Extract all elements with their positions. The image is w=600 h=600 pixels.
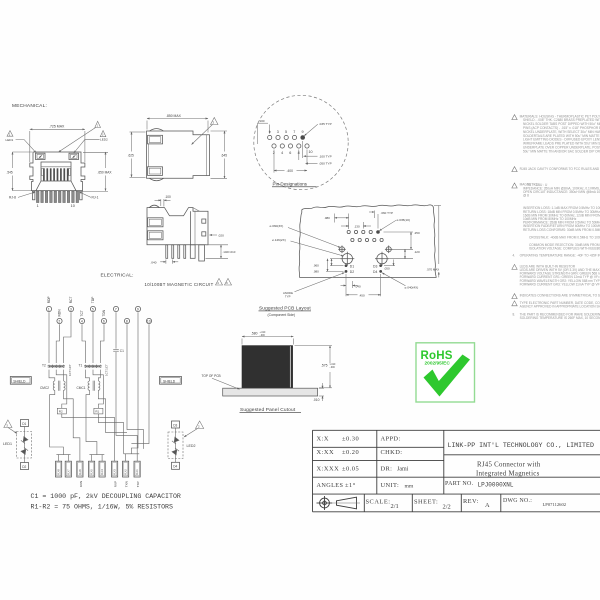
svg-text:LED1: LED1	[3, 442, 12, 446]
svg-text:.400: .400	[287, 169, 294, 173]
svg-text:SHIELD: SHIELD	[163, 380, 176, 384]
svg-text:1: 1	[37, 204, 39, 208]
svg-text:LINK-PP INT'L TECHNOLOGY CO.,: LINK-PP INT'L TECHNOLOGY CO., LIMITED	[448, 442, 594, 449]
svg-text:±0.30: ±0.30	[342, 436, 359, 443]
svg-text:.450: .450	[359, 293, 365, 297]
svg-text:APPD:: APPD:	[381, 436, 401, 443]
svg-text:Integrated Magnetics: Integrated Magnetics	[476, 471, 540, 478]
svg-text:UNIT:: UNIT:	[381, 482, 400, 489]
svg-text:.545: .545	[7, 170, 13, 174]
svg-text:-.000: -.000	[260, 335, 266, 337]
svg-text:CROSSTALK: -40dB MAX FROM 0.5M: CROSSTALK: -40dB MAX FROM 0.5MHz TO 100M…	[529, 236, 600, 240]
svg-text:CMC2: CMC2	[40, 386, 49, 390]
svg-text:6: 6	[289, 151, 291, 155]
svg-text:FORWARD CURRENT GR3: YELLOW 11: FORWARD CURRENT GR3: YELLOW 11mA TYP @ V…	[520, 282, 600, 286]
svg-text:DR:: DR:	[381, 466, 393, 473]
svg-text:TXP: TXP	[136, 481, 140, 487]
svg-text:R1: R1	[95, 410, 99, 414]
svg-text:C1 = 1000 pF, 2kV DECOUPLING C: C1 = 1000 pF, 2kV DECOUPLING CAPACITOR	[31, 493, 181, 500]
svg-text:.140±.010: .140±.010	[223, 250, 236, 254]
svg-text:D2: D2	[22, 465, 26, 469]
svg-text:5: 5	[92, 307, 94, 311]
svg-text:⌀.126(2X): ⌀.126(2X)	[272, 238, 286, 242]
svg-text:2/1: 2/1	[391, 503, 399, 510]
svg-text:±0.20: ±0.20	[342, 449, 359, 456]
svg-text:7: 7	[115, 307, 117, 311]
svg-text:1CT:1CT: 1CT:1CT	[68, 364, 72, 376]
svg-text:.645: .645	[221, 153, 227, 157]
svg-text:⌀.035(10): ⌀.035(10)	[397, 218, 410, 222]
svg-text:DWG NO.:: DWG NO.:	[503, 498, 532, 504]
svg-text:-.000: -.000	[330, 367, 336, 369]
svg-text:50u" MIN MATTE TIN AND/OR SAC: 50u" MIN MATTE TIN AND/OR SAC SOLDER DIP…	[523, 149, 600, 153]
svg-text:ANGLES: ANGLES	[317, 482, 344, 489]
svg-text:RJ-4: RJ-4	[100, 469, 104, 475]
svg-text:D2: D2	[350, 270, 354, 274]
svg-text:Pin Designations: Pin Designations	[273, 181, 308, 186]
svg-text:1CT:1CT: 1CT:1CT	[105, 364, 109, 376]
svg-text:LED2: LED2	[187, 444, 196, 448]
svg-text:.050: .050	[384, 267, 390, 271]
svg-text:SHIELD: SHIELD	[13, 380, 26, 384]
svg-text:D1: D1	[22, 422, 26, 426]
svg-text:.570 MAX: .570 MAX	[427, 267, 440, 271]
svg-text:Jami: Jami	[397, 467, 409, 473]
svg-text:D4: D4	[173, 465, 177, 469]
svg-text:.650 MAX: .650 MAX	[98, 170, 113, 174]
svg-text:.035 TYP: .035 TYP	[319, 122, 332, 126]
svg-text:RJ-3: RJ-3	[113, 469, 117, 475]
svg-text:.050 TYP: .050 TYP	[319, 162, 332, 166]
svg-text:3: 3	[70, 307, 72, 311]
svg-text:.580: .580	[251, 331, 258, 335]
svg-text:@ 8: @ 8	[523, 193, 529, 197]
svg-text:.020: .020	[218, 233, 224, 237]
svg-text:10: 10	[71, 204, 75, 208]
svg-text:LPJ0000XNL: LPJ0000XNL	[478, 482, 514, 489]
svg-text:A: A	[485, 502, 490, 509]
svg-text:(Component Side): (Component Side)	[268, 313, 296, 317]
svg-text:.060 TYP: .060 TYP	[381, 211, 393, 215]
svg-text:.120: .120	[414, 250, 420, 254]
svg-text:8.: 8.	[513, 312, 516, 316]
svg-text:TCT: TCT	[80, 310, 84, 316]
svg-text:4: 4	[281, 151, 283, 155]
svg-text:10: 10	[147, 319, 151, 323]
svg-text:X:XXX: X:XXX	[317, 466, 340, 473]
svg-text:RoHS: RoHS	[421, 350, 453, 362]
svg-text:⌀.060(3X): ⌀.060(3X)	[270, 224, 284, 228]
svg-text:RJ-1: RJ-1	[92, 196, 99, 200]
svg-text:mm: mm	[405, 483, 414, 489]
svg-text:TYP: TYP	[285, 295, 291, 299]
svg-text:T2: T2	[42, 364, 46, 368]
svg-text:TXN: TXN	[125, 481, 129, 487]
svg-text:±0.05: ±0.05	[342, 466, 359, 473]
svg-text:2002/95/EC: 2002/95/EC	[425, 361, 451, 367]
svg-text:.100 TYP: .100 TYP	[319, 154, 332, 158]
svg-text:Suggested Panel Cutout: Suggested Panel Cutout	[240, 407, 296, 413]
svg-text:RXN: RXN	[79, 481, 83, 488]
svg-text:.850 MAX: .850 MAX	[166, 114, 182, 118]
svg-text:.725 MAX: .725 MAX	[49, 125, 65, 129]
svg-text:5: 5	[285, 130, 287, 134]
svg-text:.080: .080	[324, 216, 330, 220]
svg-text:8: 8	[126, 319, 128, 323]
svg-text:+.010: +.010	[260, 332, 267, 334]
svg-text:RJ45 JACK CAVITY CONFORMS TO F: RJ45 JACK CAVITY CONFORMS TO FCC RULES A…	[520, 167, 600, 171]
svg-text:D3: D3	[173, 423, 177, 427]
svg-text:10/100BT MAGNETIC CIRCUIT: 10/100BT MAGNETIC CIRCUIT	[145, 282, 214, 287]
svg-text:RDN: RDN	[58, 309, 62, 317]
svg-text:PART NO.: PART NO.	[445, 481, 474, 487]
svg-text:TDP: TDP	[91, 296, 95, 303]
svg-text:±1°: ±1°	[345, 482, 356, 489]
svg-text:LED1: LED1	[6, 138, 14, 142]
svg-text:4: 4	[81, 319, 83, 323]
svg-text:6: 6	[103, 319, 105, 323]
svg-text:.100: .100	[165, 195, 171, 199]
svg-text:7: 7	[293, 130, 295, 134]
svg-text:R1-R2 = 75 OHMS, 1/16W, 5% RES: R1-R2 = 75 OHMS, 1/16W, 5% RESISTORS	[31, 504, 173, 511]
svg-text:SHEET:: SHEET:	[414, 499, 438, 506]
svg-text:1: 1	[48, 307, 50, 311]
svg-text:MECHANICAL:: MECHANICAL:	[12, 103, 47, 109]
svg-text:.010: .010	[313, 398, 320, 402]
svg-text:ELECTRICAL:: ELECTRICAL:	[101, 273, 134, 279]
svg-text:9: 9	[302, 130, 304, 134]
svg-text:.130: .130	[354, 224, 360, 228]
svg-text:+.010: +.010	[330, 364, 337, 366]
svg-text:LP07112602: LP07112602	[543, 502, 567, 507]
svg-text:.575: .575	[321, 364, 328, 368]
svg-text:.060: .060	[313, 264, 319, 268]
svg-text:RJ-8: RJ-8	[57, 469, 61, 475]
svg-text:4.: 4.	[513, 254, 516, 258]
svg-text:RCT: RCT	[69, 296, 73, 303]
svg-text:R2: R2	[59, 410, 63, 414]
svg-text:RDP: RDP	[47, 295, 51, 303]
svg-text:9: 9	[137, 307, 139, 311]
svg-text:X:X: X:X	[317, 436, 330, 443]
svg-text:OPEN CIRCUIT INDUCTANCE: 350uH: OPEN CIRCUIT INDUCTANCE: 350uH MIN @8mA …	[523, 190, 600, 194]
svg-text:INDICATES CONNECTIONS ARE SYMM: INDICATES CONNECTIONS ARE SYMMETRICAL TO…	[520, 294, 600, 298]
svg-text:.250: .250	[414, 231, 420, 235]
svg-text:2: 2	[58, 319, 60, 323]
svg-text:T1: T1	[79, 364, 83, 368]
svg-text:ISOLATION VOLTAGE: COMPLIES WI: ISOLATION VOLTAGE: COMPLIES WITH IEEE802…	[529, 246, 600, 250]
svg-text:CHKD:: CHKD:	[381, 449, 403, 456]
svg-text:SOLDERING TEMPERATURE IS 260F: SOLDERING TEMPERATURE IS 260F MAX, 10 SE…	[520, 316, 600, 320]
svg-text:.080: .080	[313, 269, 319, 273]
svg-text:RJ-7: RJ-7	[66, 469, 70, 475]
svg-text:LED2: LED2	[100, 137, 108, 141]
svg-text:OPERATING TEMPERATURE RANGE: -: OPERATING TEMPERATURE RANGE: -40F TO +85…	[520, 254, 600, 258]
svg-text:CMC1: CMC1	[77, 386, 86, 390]
svg-text:D1: D1	[350, 264, 354, 268]
svg-text:RJ-2: RJ-2	[124, 469, 128, 475]
svg-text:.040: .040	[150, 260, 156, 264]
svg-text:TOP OF PCB: TOP OF PCB	[202, 374, 221, 378]
svg-text:X:XX: X:XX	[317, 449, 335, 456]
svg-text:C1: C1	[120, 349, 124, 353]
svg-text:RJ45 Connector with: RJ45 Connector with	[477, 461, 541, 468]
svg-text:RJ-6: RJ-6	[78, 469, 82, 475]
svg-text:RJ-1: RJ-1	[135, 469, 139, 475]
svg-text:RJ-5: RJ-5	[90, 469, 94, 475]
svg-text:.040: .040	[355, 284, 361, 288]
svg-text:3: 3	[277, 130, 279, 134]
svg-text:.625: .625	[128, 153, 134, 157]
svg-text:Suggested PCB Layout: Suggested PCB Layout	[259, 305, 311, 311]
svg-text:AGENCY APPROVED IN APPROPRIATE: AGENCY APPROVED IN APPROPRIATE LOCATION …	[520, 304, 600, 308]
svg-text:⌀.040(4X): ⌀.040(4X)	[405, 286, 419, 290]
svg-text:REV:: REV:	[463, 498, 479, 505]
svg-text:RJ-8: RJ-8	[9, 196, 16, 200]
svg-text:TDN: TDN	[102, 309, 106, 316]
svg-text:D3: D3	[373, 264, 377, 268]
svg-text:RXP: RXP	[114, 481, 118, 487]
svg-text:2/2: 2/2	[443, 504, 451, 511]
svg-text:D4: D4	[373, 270, 377, 274]
svg-text:10: 10	[309, 150, 313, 154]
svg-text:SCALE:: SCALE:	[366, 499, 391, 506]
svg-text:.100: .100	[259, 119, 265, 123]
svg-text:RETURN LOSS CONFORMS: 30dB MIN: RETURN LOSS CONFORMS: 30dB MIN FROM 0.5M…	[523, 228, 600, 232]
